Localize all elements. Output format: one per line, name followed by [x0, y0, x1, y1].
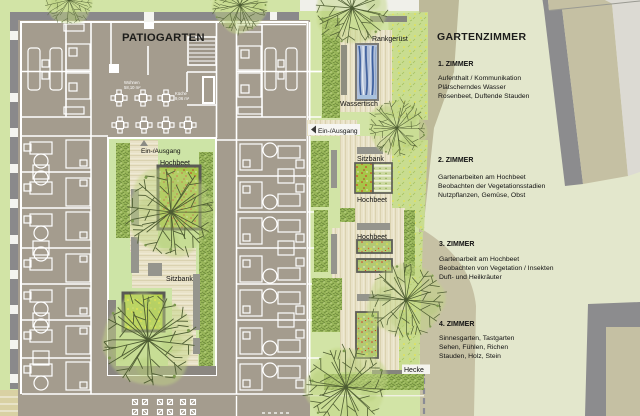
svg-text:Wassertisch: Wassertisch — [340, 101, 378, 108]
svg-text:Ein-/Ausgang: Ein-/Ausgang — [141, 148, 181, 155]
svg-text:58,10 m²: 58,10 m² — [124, 85, 141, 90]
svg-text:Hochbeet: Hochbeet — [357, 234, 387, 241]
svg-text:Beobachten der Vegetationsstad: Beobachten der Vegetationsstadien — [438, 183, 546, 190]
svg-text:Gartenarbeit am Hochbeet: Gartenarbeit am Hochbeet — [439, 256, 519, 263]
svg-text:Rankgerüst: Rankgerüst — [372, 36, 408, 43]
svg-text:2. ZIMMER: 2. ZIMMER — [438, 157, 473, 164]
svg-text:9,06 m²: 9,06 m² — [175, 96, 190, 101]
svg-text:Nutzpflanzen, Gemüse, Obst: Nutzpflanzen, Gemüse, Obst — [438, 192, 525, 199]
svg-text:Beobachten von Vegetation / In: Beobachten von Vegetation / Insekten — [439, 265, 554, 272]
svg-text:Rosenbeet, Duftende Stauden: Rosenbeet, Duftende Stauden — [438, 93, 530, 100]
svg-text:Duft- und Heilkräuter: Duft- und Heilkräuter — [439, 274, 502, 281]
svg-text:PATIOGARTEN: PATIOGARTEN — [122, 32, 205, 44]
svg-text:Sitzbank: Sitzbank — [166, 276, 193, 283]
svg-text:Plätscherndes Wasser: Plätscherndes Wasser — [438, 84, 506, 91]
svg-text:Gartenarbeiten am Hochbeet: Gartenarbeiten am Hochbeet — [438, 174, 526, 181]
svg-text:GARTENZIMMER: GARTENZIMMER — [437, 31, 526, 43]
svg-text:Ein-/Ausgang: Ein-/Ausgang — [318, 128, 358, 135]
svg-text:Aufenthalt / Kommunikation: Aufenthalt / Kommunikation — [438, 75, 521, 82]
svg-text:3. ZIMMER: 3. ZIMMER — [439, 241, 474, 248]
svg-text:1. ZIMMER: 1. ZIMMER — [438, 61, 473, 68]
svg-text:Sinnesgarten, Tastgarten: Sinnesgarten, Tastgarten — [439, 335, 515, 342]
svg-text:Hochbeet: Hochbeet — [357, 197, 387, 204]
svg-text:Sitzbank: Sitzbank — [357, 156, 384, 163]
svg-text:Sehen, Fühlen, Richen: Sehen, Fühlen, Richen — [439, 344, 508, 351]
svg-text:4. ZIMMER: 4. ZIMMER — [439, 321, 474, 328]
svg-text:Stauden, Holz, Stein: Stauden, Holz, Stein — [439, 353, 501, 360]
svg-text:Hochbeet: Hochbeet — [160, 160, 190, 167]
svg-text:Hecke: Hecke — [404, 367, 424, 374]
